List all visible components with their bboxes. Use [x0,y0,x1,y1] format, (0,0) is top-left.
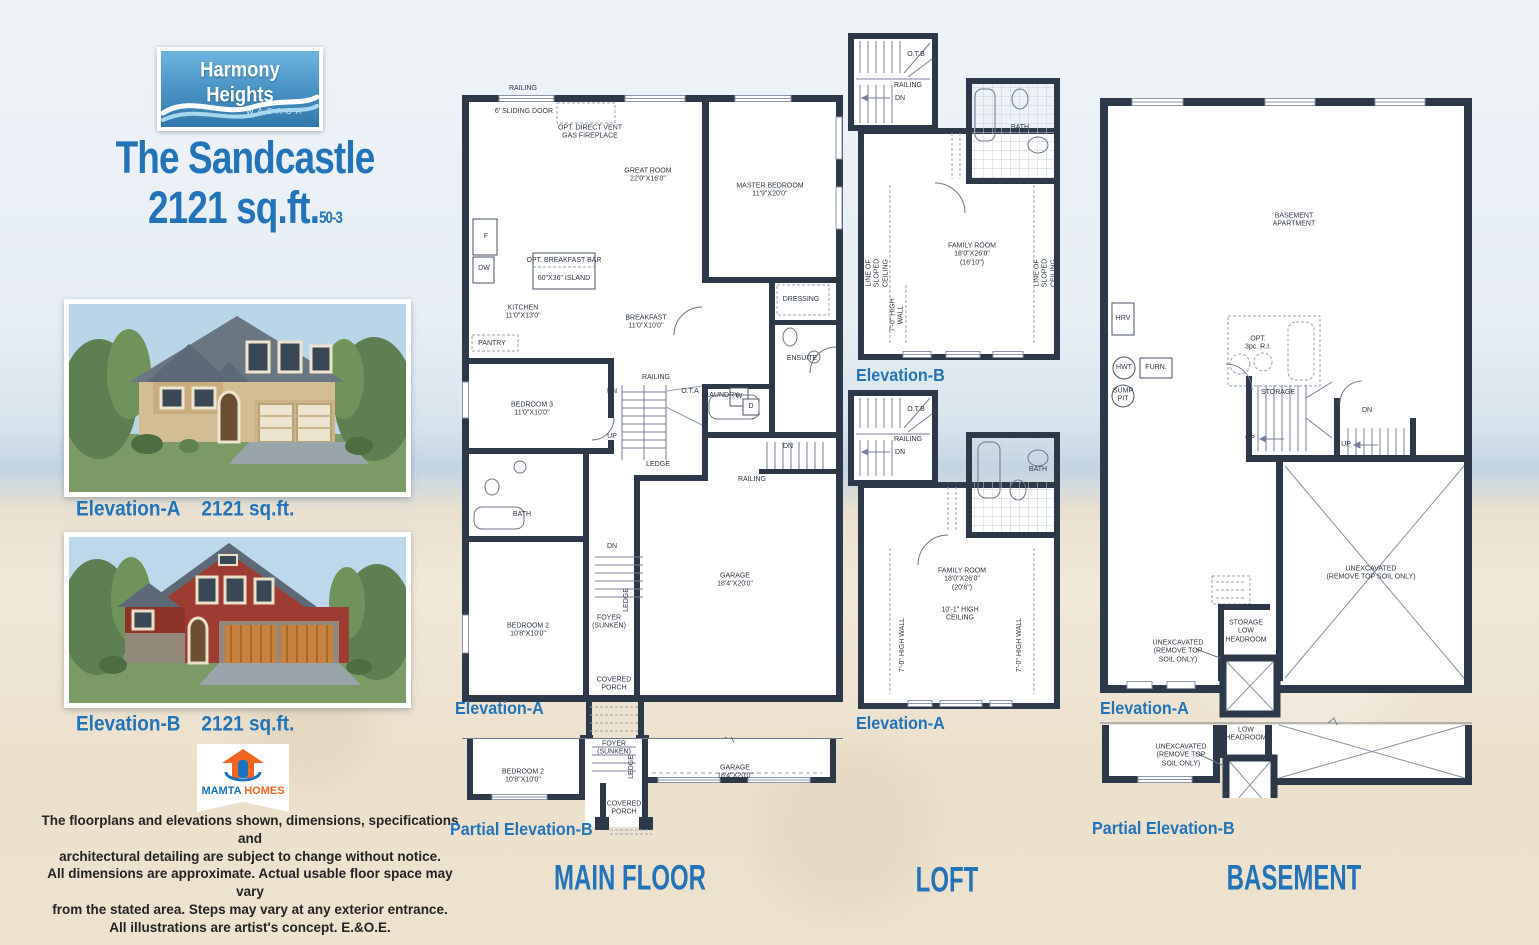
model-size-text: 2121 sq.ft. [148,182,319,233]
loft-b-drawing [848,33,1060,363]
model-name: The Sandcastle [73,132,416,184]
mamta-text: MAMTA [201,785,241,797]
harmony-heights-logo: Harmony Heights WASAGA [157,47,323,131]
loft-elevation-a-plan: O.T.B RAILING DN BATH FAMILY ROOM 18'0"X… [848,390,1060,712]
basement-title: BASEMENT [1227,859,1362,899]
mamta-house-icon [221,748,265,784]
model-size: 2121 sq.ft.50-3 [73,182,416,234]
elevation-b-caption-size: 2121 sq.ft. [201,712,294,736]
elevation-a-caption-size: 2121 sq.ft. [201,497,294,521]
main-elevation-a-label: Elevation-A [455,699,544,720]
basement-partial-b-label: Partial Elevation-B [1092,819,1235,840]
basement-drawing [1100,98,1472,798]
elevation-a-caption: Elevation-A 2121 sq.ft. [76,497,294,521]
elevation-b-rendering [69,537,406,703]
wave-icon [161,91,319,125]
brochure-page: Harmony Heights WASAGA The Sandcastle 21… [0,0,1539,945]
basement-elevation-a-label: Elevation-A [1100,699,1189,720]
mamta-homes-logo: MAMTA HOMES [197,744,289,812]
basement-plan: BASEMENT APARTMENT HRV HWT FURN. SUMP PI… [1100,98,1472,798]
main-floor-drawing [462,95,843,750]
homes-text: HOMES [244,785,284,797]
main-floor-title: MAIN FLOOR [554,859,706,899]
elevation-a-rendering [69,304,406,492]
main-floor-plan: RAILING 6' SLIDING DOOR OPT. DIRECT VENT… [462,95,843,750]
disclaimer-text: The floorplans and elevations shown, dim… [36,812,464,937]
elevation-b-photo [64,532,411,708]
model-code: 50-3 [319,209,342,227]
elevation-a-caption-name: Elevation-A [76,497,181,521]
loft-elevation-b-plan: O.T.B RAILING DN BATH FAMILY ROOM 18'0"X… [848,33,1060,363]
mamta-homes-wordmark: MAMTA HOMES [201,785,284,797]
loft-a-drawing [848,390,1060,712]
elevation-b-caption: Elevation-B 2121 sq.ft. [76,712,294,736]
loft-b-elevation-label: Elevation-B [856,366,945,387]
elevation-a-photo [64,299,411,497]
elevation-b-caption-name: Elevation-B [76,712,181,736]
main-partial-b-label: Partial Elevation-B [450,820,593,841]
loft-a-elevation-label: Elevation-A [856,714,945,735]
loft-title: LOFT [916,861,979,901]
model-title: The Sandcastle 2121 sq.ft.50-3 [50,134,440,232]
